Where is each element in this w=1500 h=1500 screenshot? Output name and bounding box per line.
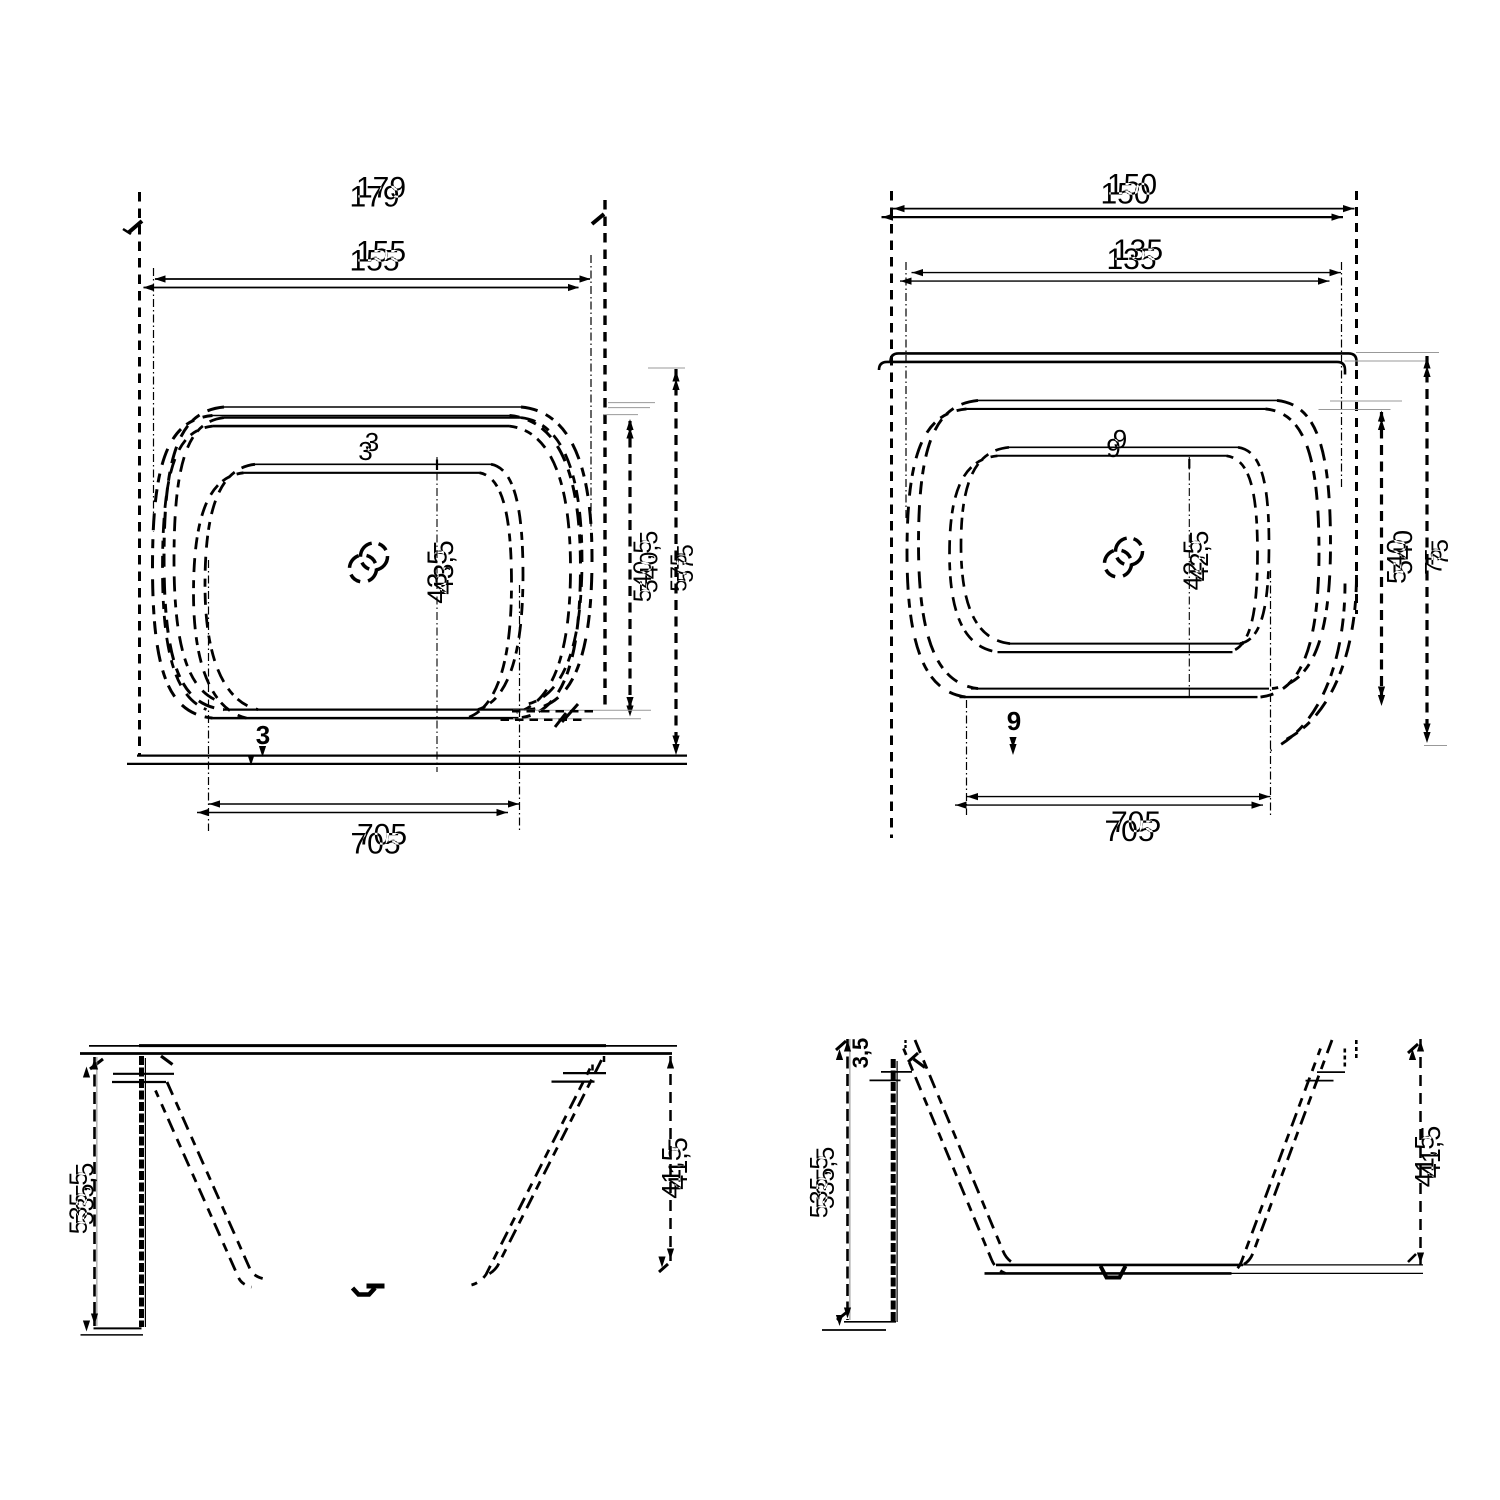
svg-text:705: 705 (1104, 815, 1154, 848)
svg-text:3: 3 (358, 436, 372, 466)
svg-text:179: 179 (349, 181, 399, 214)
svg-text:3,5: 3,5 (848, 1038, 873, 1069)
svg-text:150: 150 (1100, 178, 1150, 211)
svg-text:41,5: 41,5 (1410, 1135, 1440, 1188)
svg-text:575: 575 (666, 553, 692, 591)
svg-text:540: 540 (1382, 539, 1412, 584)
svg-text:42,5: 42,5 (1178, 540, 1208, 591)
svg-text:9: 9 (1007, 706, 1021, 736)
svg-text:535,5: 535,5 (65, 1172, 93, 1235)
svg-text:135: 135 (1106, 243, 1156, 276)
svg-text:75: 75 (1421, 548, 1448, 575)
svg-text:43,5: 43,5 (421, 549, 452, 604)
svg-text:705: 705 (350, 828, 400, 861)
svg-text:535,5: 535,5 (806, 1156, 834, 1219)
svg-text:3: 3 (256, 720, 270, 750)
svg-text:155: 155 (349, 245, 399, 278)
svg-text:540,5: 540,5 (629, 540, 657, 603)
svg-text:9: 9 (1106, 433, 1120, 463)
svg-text:41,5: 41,5 (657, 1146, 687, 1199)
